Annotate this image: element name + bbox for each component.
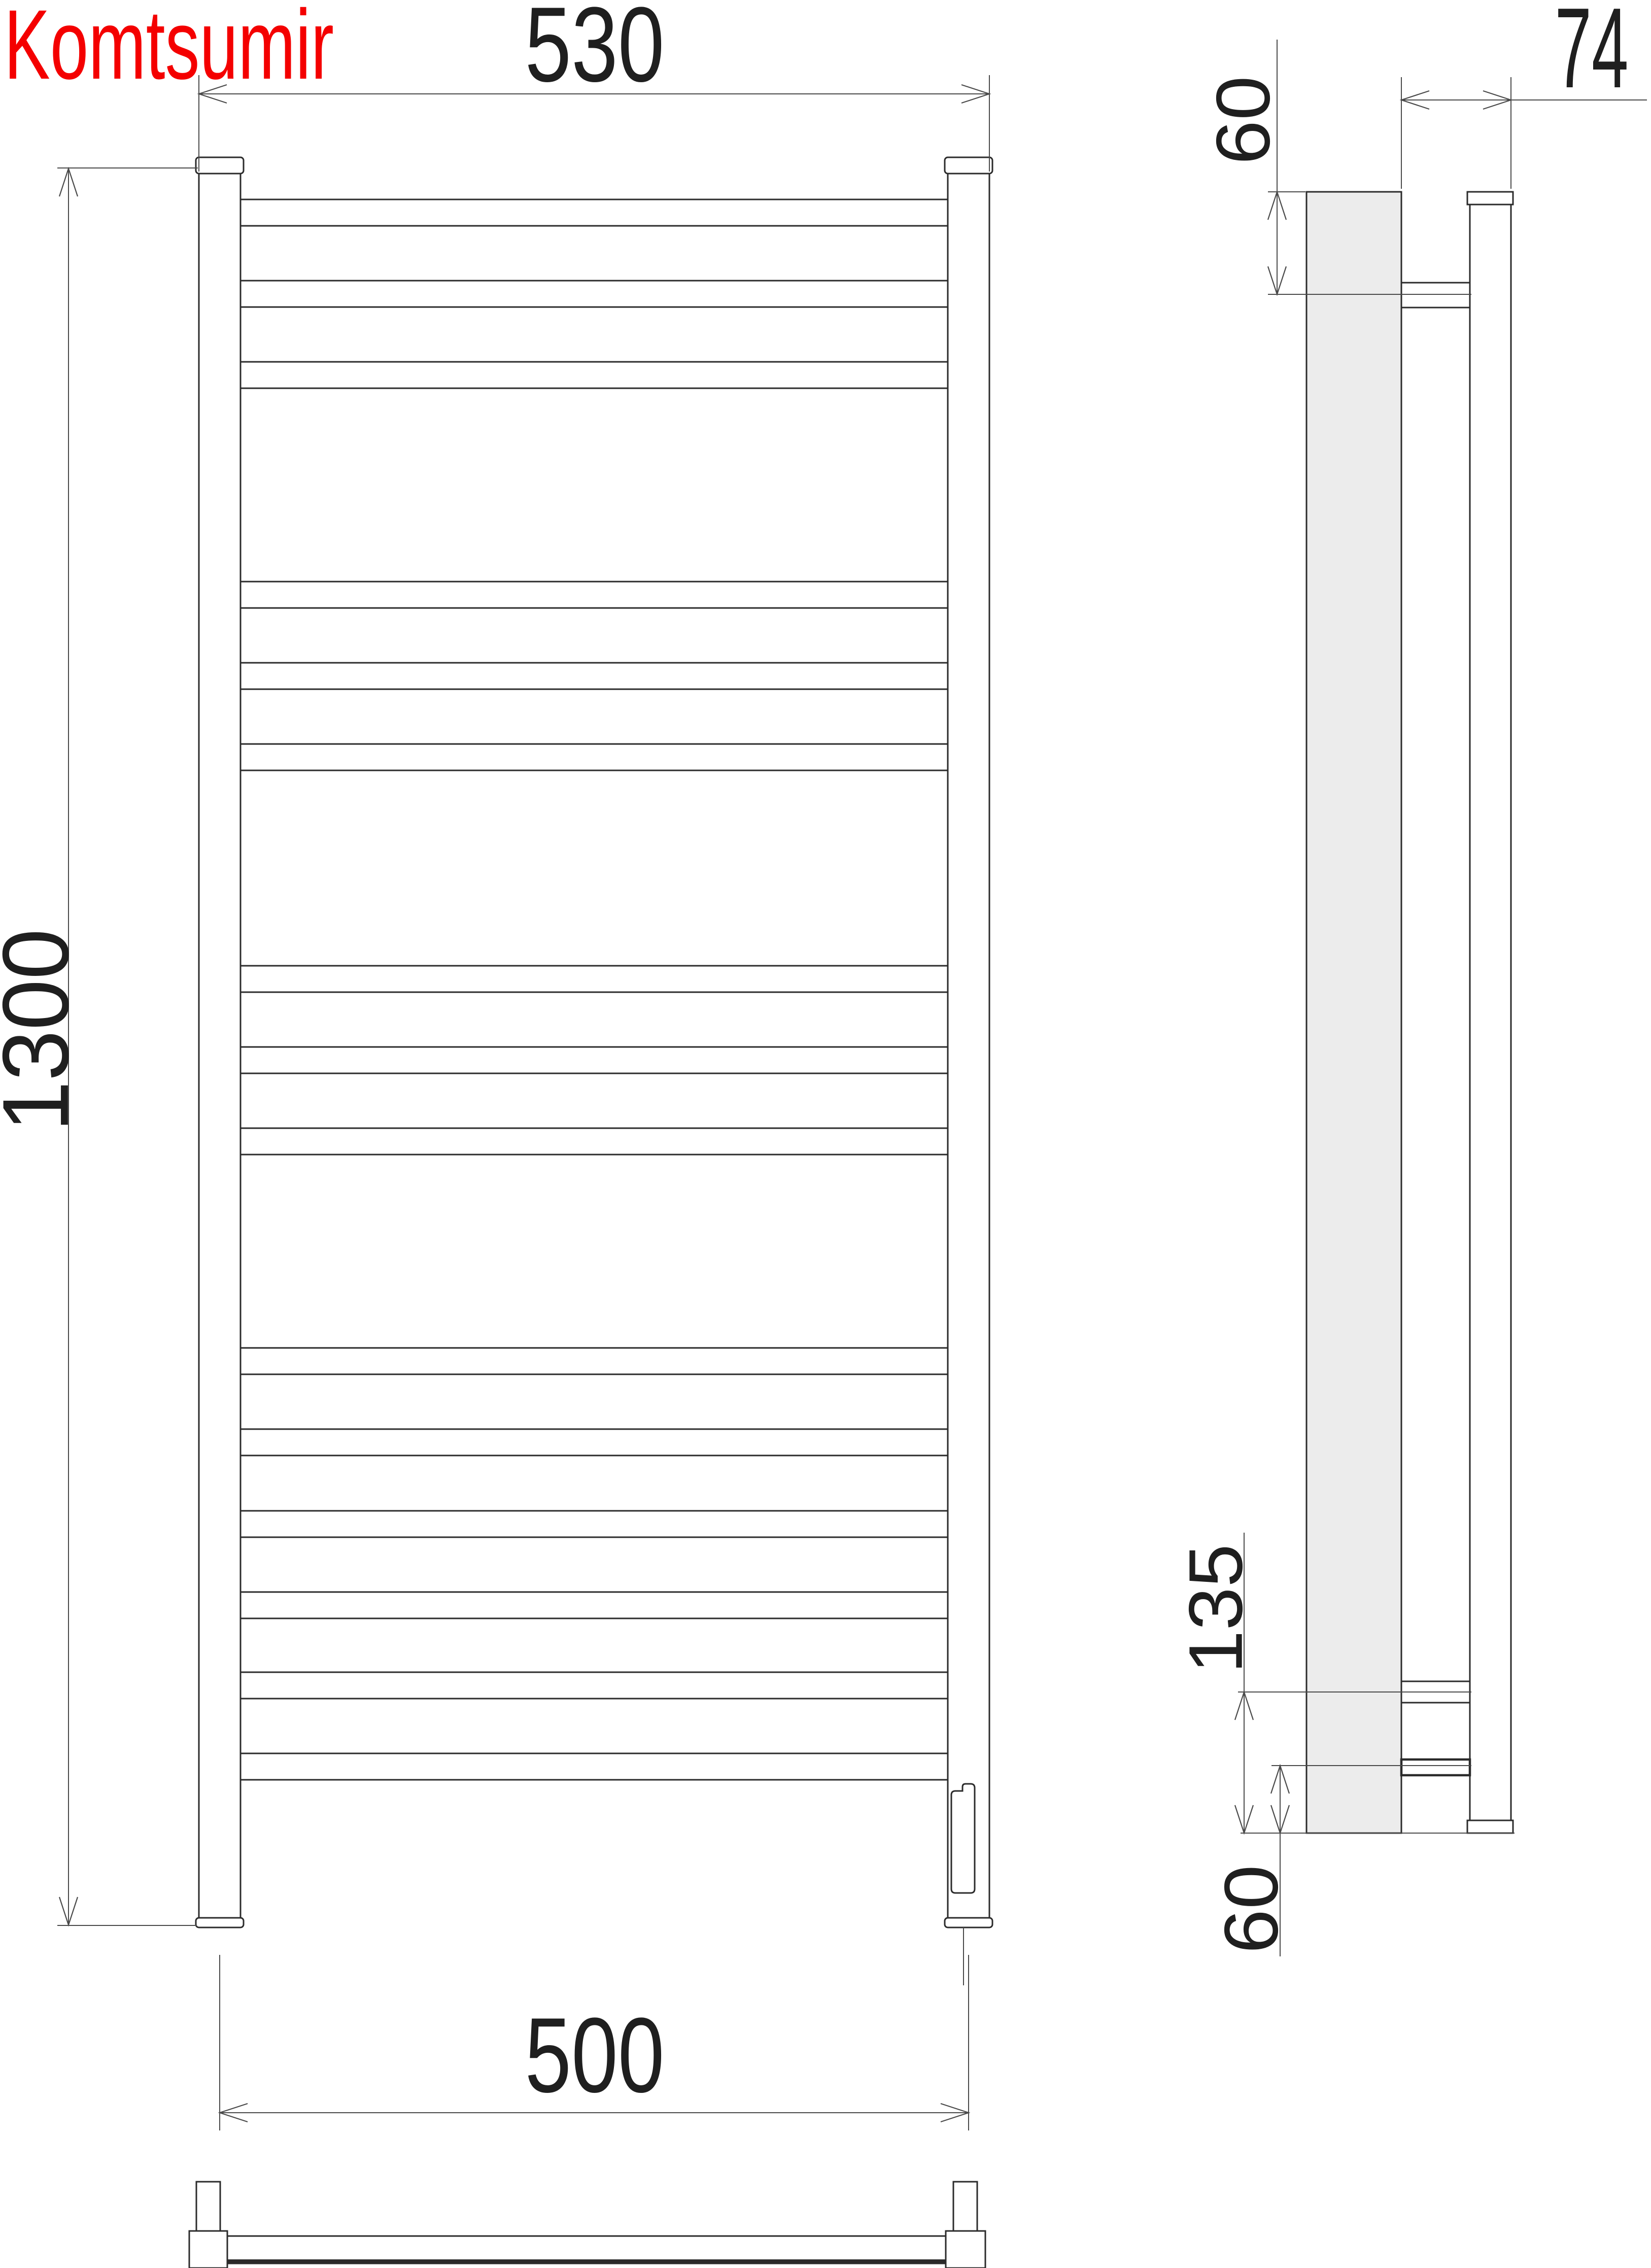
ladder-tube (240, 582, 948, 608)
right-post (945, 157, 992, 1985)
front-view: 530 1300 500 (0, 0, 992, 2130)
dim-1300-label: 1300 (0, 929, 88, 1132)
right-foot (946, 2231, 985, 2268)
wall-rail (1470, 192, 1511, 1833)
left-post (196, 157, 244, 1927)
ladder-tube (240, 362, 948, 388)
drawing-canvas: Komtsumir 530 (0, 0, 1651, 2268)
ladder-tube (240, 1753, 948, 1780)
ladder-tube (240, 1348, 948, 1374)
left-post-body (199, 174, 240, 1918)
dim-135-label: 135 (1173, 1544, 1258, 1674)
dim-530-label: 530 (525, 0, 665, 104)
dim-60-bottom-label: 60 (1209, 1865, 1294, 1954)
ladder-tube (240, 1672, 948, 1699)
right-wall-stub (953, 2182, 977, 2231)
wall-rail-top-cap (1467, 192, 1513, 205)
dim-1300: 1300 (0, 168, 198, 1925)
ladder-tube (240, 1429, 948, 1455)
wall-rail-bottom-cap (1467, 1820, 1513, 1833)
dim-74: 74 (1401, 0, 1647, 189)
ladder-tube (240, 744, 948, 770)
ladder-tube (240, 663, 948, 689)
bottom-view (189, 2182, 985, 2268)
side-view: 74 60 135 60 (1173, 0, 1647, 1956)
bottom-rail (227, 2236, 946, 2263)
right-post-top-cap (945, 157, 992, 174)
left-post-top-cap (196, 157, 244, 174)
brand-logo: Komtsumir (4, 0, 334, 100)
ladder-tube (240, 966, 948, 992)
dim-74-label: 74 (1555, 0, 1629, 112)
dim-60-top-label: 60 (1200, 76, 1286, 165)
ladder-tube (240, 1592, 948, 1618)
dim-500: 500 (220, 1955, 969, 2130)
right-post-body (948, 174, 989, 1918)
top-bracket (1401, 283, 1470, 308)
ladder-tube (240, 1047, 948, 1073)
towel-rail-drawing: Komtsumir 530 (0, 0, 1651, 2268)
right-post-bottom-cap (945, 1918, 992, 1927)
ladder-tube (240, 281, 948, 307)
ladder-tube (240, 1128, 948, 1155)
side-body-panel (1306, 192, 1401, 1833)
dim-500-label: 500 (525, 1995, 665, 2115)
bottom-bracket (1401, 1759, 1470, 1775)
left-post-bottom-cap (196, 1918, 244, 1927)
ladder-tube (240, 199, 948, 226)
ladder-tube (240, 1511, 948, 1537)
left-wall-stub (196, 2182, 220, 2231)
left-foot (189, 2231, 227, 2268)
ladder-tubes (240, 199, 948, 1780)
